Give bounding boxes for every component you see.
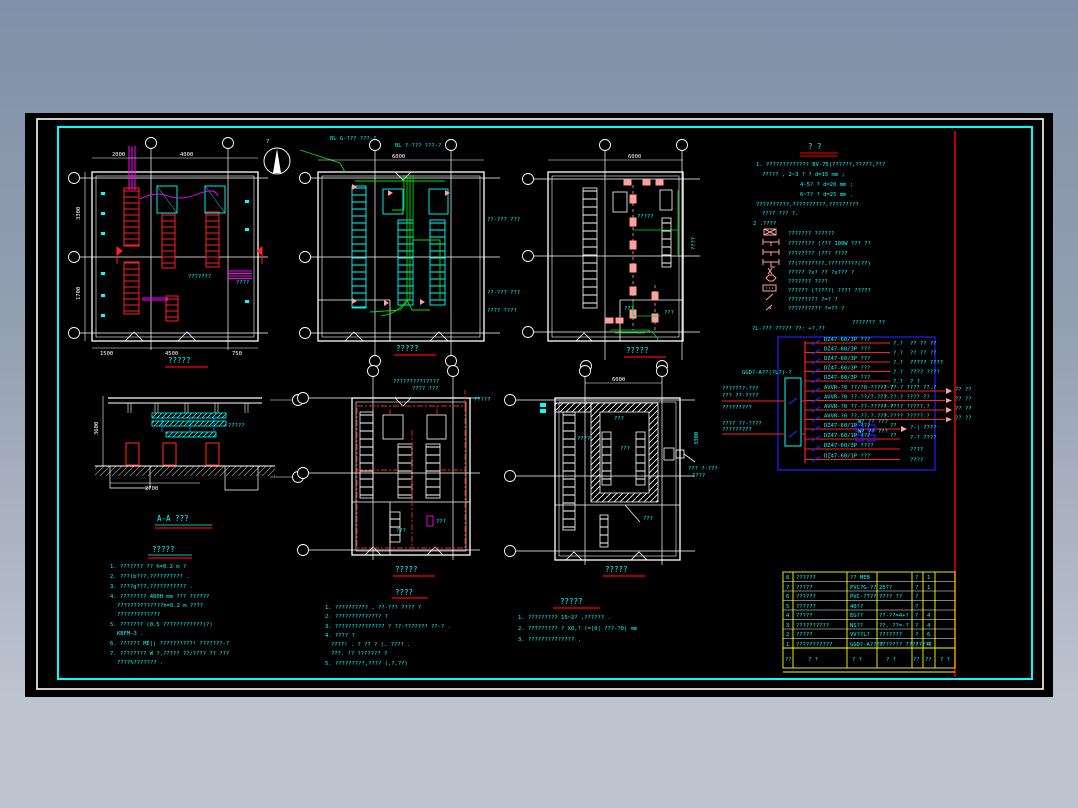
t-r5-model: EG?? bbox=[850, 613, 863, 619]
nc-line-4: 4. ???? ? bbox=[325, 633, 355, 639]
t-h-5: ?? bbox=[913, 657, 920, 663]
p2-ann-2: BL ?-??? ???-? bbox=[395, 143, 441, 149]
sld-c12-r: ???? bbox=[910, 447, 923, 453]
p2-title: ????? bbox=[396, 344, 419, 353]
p5-ann-2: ???? ??? bbox=[412, 386, 439, 392]
p5-label-3: ??? bbox=[396, 528, 406, 534]
sld-c3-r: ?.? bbox=[893, 360, 903, 366]
sld-c1-l: DZ47-60/3P ??? bbox=[824, 337, 870, 343]
ni-line-5: ??????????????h=0.2 m ???? bbox=[117, 603, 203, 609]
t-r5-qty: ? bbox=[915, 613, 918, 619]
p1-cab-note: ???? bbox=[236, 280, 249, 286]
p5-title: ????? bbox=[395, 565, 418, 574]
notes-install-title: ????? bbox=[152, 545, 175, 554]
p2-right-label-1: ??-??? ??? bbox=[487, 217, 520, 223]
ni-line-9: 6. ?????? ME|| ??????????! ???????-? bbox=[110, 641, 229, 647]
sld-c2-x: ?? ?? ?? bbox=[910, 351, 937, 357]
ni-line-10: 7. ???????? W ?,????? ??/???? ?? ??? bbox=[110, 651, 229, 657]
sld-box-label: GGD?-A??(?L?)-? bbox=[742, 370, 792, 376]
t-r6-note: ??. ??=-? bbox=[879, 623, 909, 629]
p6-side-dim: 3300 bbox=[694, 432, 700, 445]
t-r4-num: 5 bbox=[786, 604, 789, 610]
notes-main-line-6: ???? ??? ?. bbox=[762, 211, 798, 217]
p1-room-note: ??????? bbox=[188, 274, 211, 280]
legend-text-8: ????????? ?=? ? bbox=[788, 297, 838, 303]
p4-dim-bottom: 2700 bbox=[145, 486, 158, 492]
nf-line-1: 1. ????????? 15~2? ,?????? . bbox=[518, 615, 611, 621]
p6-title: ????? bbox=[605, 565, 628, 574]
legend-text-2: ???????? (??? 100W ??? ?? bbox=[788, 241, 871, 247]
notes-main-line-2: ????? , 2~3 ? ? d=15 mm ; bbox=[762, 172, 845, 178]
nc-line-5: ????! . ? ?? ? (. ???? . bbox=[331, 642, 410, 648]
t-r6-qty: ? bbox=[915, 623, 918, 629]
sld-c2-r: ?.? bbox=[893, 351, 903, 357]
t-r3-qty: ? bbox=[915, 594, 918, 600]
p1-dim-top-2: 4000 bbox=[180, 152, 193, 158]
t-r2-model: PVC?G-?? bbox=[850, 585, 877, 591]
nf-line-2: 2. ????????? ? X0,? (=|0| ???-?0| mm bbox=[518, 626, 638, 632]
p1-dim-side-1: 3300 bbox=[76, 207, 82, 220]
sld-c4-l: DZ47-60/3P ??? bbox=[824, 366, 870, 372]
p2-right-label-2: ??-??? ??? bbox=[487, 290, 520, 296]
t-r7-qty: ? bbox=[915, 632, 918, 638]
notes-floor-title: ????? bbox=[560, 597, 583, 606]
t-h-2: ? ? bbox=[808, 657, 818, 663]
t-r3-model: PVC-?T?? bbox=[850, 594, 877, 600]
t-h-1: ?? bbox=[785, 657, 792, 663]
p3-label-3: ??? bbox=[664, 310, 674, 316]
notes-main-line-7: 2 .???? bbox=[753, 221, 776, 227]
ni-line-1: 1. ??????? ?? h=0.2 m ? bbox=[110, 564, 186, 570]
ni-line-11: ????%??????? . bbox=[117, 660, 163, 666]
ni-line-3: 3. ????g???,??????????? . bbox=[110, 584, 193, 590]
p6-label-4: ??? ?-??? bbox=[688, 466, 718, 472]
t-r2-qty: ? bbox=[915, 585, 918, 591]
sld-c7-r: ?? ?? bbox=[955, 397, 972, 403]
p6-dim-top: 6000 bbox=[612, 377, 625, 383]
sld-c11-x: ?-? ???? bbox=[910, 435, 937, 441]
legend-text-5: ????? ?x? ?? ?x??? ? bbox=[788, 270, 854, 276]
t-r6-name: ?????????? bbox=[796, 623, 829, 629]
sld-c3-x: ????? ???? bbox=[910, 360, 943, 366]
t-r8-num: 1 bbox=[786, 642, 789, 648]
legend-text-1: ??????? ?????? bbox=[788, 231, 834, 237]
t-h-4: ? ? bbox=[886, 657, 896, 663]
cad-viewer: ? 2000 4 bbox=[0, 0, 1078, 808]
p1-dim-bot-3: 750 bbox=[232, 351, 242, 357]
legend-text-9: ?????????? ?=?? ? bbox=[788, 306, 844, 312]
p1-dim-side-2: 1700 bbox=[76, 287, 82, 300]
ni-line-7: 5. ??????? (0.5 ????????????(?) bbox=[110, 622, 213, 628]
sld-c4-x: ???? ???? bbox=[910, 370, 940, 376]
sld-c8-m: ??-???? ?????.? bbox=[880, 404, 930, 410]
notes-main-line-4: 6~7? ? d=25 mm . bbox=[800, 192, 853, 198]
t-r7-num: 2 bbox=[786, 632, 789, 638]
sld-feeder1-line1: ???????-??? bbox=[722, 386, 758, 392]
t-r6-num: 3 bbox=[786, 623, 789, 629]
sld-feeder2-line2: ????????? bbox=[722, 427, 752, 433]
sld-header-1: ?L-??? ????? ??: +?.?? bbox=[752, 326, 825, 332]
sld-c10-r: ?? bbox=[890, 423, 897, 429]
sld-c11-r: ?? bbox=[890, 433, 897, 439]
t-r3-note: ???? ?? bbox=[879, 594, 902, 600]
ni-line-8: KBFM-3 . bbox=[117, 631, 144, 637]
nc-line-6: ???. ?? ??????? ? bbox=[331, 651, 387, 657]
legend-text-4: ??(????????,?????????(??) bbox=[788, 261, 871, 267]
ni-line-2: 2. ???(b???,?????????? . bbox=[110, 574, 189, 580]
sld-c4-r: ?.? bbox=[893, 370, 903, 376]
sld-c9-r: ?? ?? bbox=[955, 416, 972, 422]
nf-line-3: 3. ?????????????? . bbox=[518, 637, 581, 643]
p4-tray-label: ????? bbox=[228, 423, 245, 429]
nc-line-2: 2. ?????????????? ? bbox=[325, 614, 388, 620]
t-r4-name: ?????? bbox=[796, 604, 816, 610]
legend-text-6: ??????? ???? bbox=[788, 279, 828, 285]
p6-label-5: ???? bbox=[692, 473, 705, 479]
t-h-6: ?? bbox=[925, 657, 932, 663]
sld-c7-l: AVVR-?0 ??-??/?-? ? bbox=[824, 395, 887, 401]
t-r1-unit: 1 bbox=[927, 575, 930, 581]
p6-label-1: ???? bbox=[577, 436, 590, 442]
p5-label-2: ??? bbox=[436, 519, 446, 525]
legend-text-3: ???????? (??? ???? bbox=[788, 251, 848, 257]
p2-right-label-3: ???? ???? bbox=[487, 308, 517, 314]
p4-floor-hatch bbox=[95, 466, 275, 476]
nc-line-3: 3. ??????????????? ? ??-??????? ??-? . bbox=[325, 624, 451, 630]
t-r3-num: 6 bbox=[786, 594, 789, 600]
legend-text-7: ?????? (?????) ???? ????? bbox=[788, 288, 871, 294]
t-r8-name: ??????????? bbox=[796, 642, 832, 648]
t-r2-name: ????? bbox=[796, 585, 813, 591]
p5-label-1: ????? bbox=[474, 397, 491, 403]
north-label: ? bbox=[266, 139, 269, 145]
p1-title: ????? bbox=[168, 356, 191, 365]
nc-line-7: 5. ?????????,???? (,?,??) bbox=[325, 661, 408, 667]
t-r7-note: ??????? bbox=[879, 632, 902, 638]
p2-dim-top: 6000 bbox=[392, 154, 405, 160]
notes-main-line-1: 1. ????????????? BV-75|??????,?????,??? bbox=[756, 162, 885, 168]
sld-c8-r: ?? ?? bbox=[955, 406, 972, 412]
t-r5-note: ??-??=4+? bbox=[879, 613, 909, 619]
notes-cable-title: ???? bbox=[395, 588, 413, 597]
p3-label-1: ????? bbox=[637, 214, 654, 220]
sld-c5-l: DZ47-60/3P ??? bbox=[824, 375, 870, 381]
t-r3-name: ?????? bbox=[796, 594, 816, 600]
sld-header-2: ??????? ?? bbox=[852, 320, 885, 326]
ni-line-4: 4. ???????? 400H mm ??? ?????? bbox=[110, 594, 209, 600]
sld-c10-x: ?-| ???? bbox=[910, 425, 937, 431]
p6-label-2: ??? bbox=[614, 416, 624, 422]
t-r7-name: ????? bbox=[796, 632, 813, 638]
t-h-7: ? ? bbox=[940, 657, 950, 663]
t-r1-qty: ? bbox=[915, 575, 918, 581]
t-r2-note: 20?? bbox=[879, 585, 892, 591]
t-r8-note: ??????? ???????? bbox=[879, 642, 932, 648]
p6-label-6: ??? bbox=[643, 516, 653, 522]
t-h-3: ? ? bbox=[852, 657, 862, 663]
sld-c13-l: DZ47-60/1P ??? bbox=[824, 454, 870, 460]
ni-line-6: ????????????? bbox=[117, 612, 160, 618]
notes-main-line-5: ??????????,??????????,????????? bbox=[756, 202, 859, 208]
t-r4-model: 40?? bbox=[850, 604, 863, 610]
p6-label-3: ??? bbox=[620, 446, 630, 452]
sld-c7-m: ??-??-? ???? ?? bbox=[880, 395, 930, 401]
p3-title: ????? bbox=[626, 346, 649, 355]
sld-c13-r: ???? bbox=[910, 458, 923, 464]
t-r6-model: NS?? bbox=[850, 623, 863, 629]
p3-label-2: ??? bbox=[624, 306, 634, 312]
sld-c1-x: ?? ?? ?? bbox=[910, 341, 937, 347]
sld-feeder1-line3: ????????? bbox=[722, 405, 752, 411]
t-r2-unit: 1 bbox=[927, 585, 930, 591]
nc-line-1: 1. ?????????? , ??-??? ???? ? bbox=[325, 605, 421, 611]
sld-c10-m: W? ?? ??? bbox=[858, 419, 888, 425]
sld-c3-l: DZ47-60/3P ??? bbox=[824, 356, 870, 362]
notes-main-title: ? ? bbox=[808, 142, 822, 151]
p1-dim-top-1: 2000 bbox=[112, 152, 125, 158]
t-r8-qty: ? bbox=[915, 642, 918, 648]
p1-dim-bot-1: 1500 bbox=[100, 351, 113, 357]
t-r1-name: ?????? bbox=[796, 575, 816, 581]
p2-ann-1: BL G-??? ???-? bbox=[330, 136, 376, 142]
p4-title: A-A ??? bbox=[157, 514, 189, 523]
sld-c12-l: DZ47-60/3P ???? bbox=[824, 443, 874, 449]
t-r7-unit: 6 bbox=[927, 632, 930, 638]
notes-main-line-3: 4-5? ? d=20 mm ; bbox=[800, 182, 853, 188]
t-r4-qty: ? bbox=[915, 604, 918, 610]
t-r5-name: ????? bbox=[796, 613, 813, 619]
p3-side-label: ???? bbox=[691, 237, 697, 250]
sld-feeder1-line2: ??? ??-???? bbox=[722, 393, 758, 399]
sld-c11-m: W? ?? ??? bbox=[858, 429, 888, 435]
p3-dim-top: 6000 bbox=[628, 154, 641, 160]
t-r1-model: ?? MEB bbox=[850, 575, 871, 581]
t-r7-model: VV??L? bbox=[850, 632, 870, 638]
p4-dim-left: 3600 bbox=[94, 422, 100, 435]
sld-c6-m: ??-??-? ???? ??.? bbox=[880, 385, 936, 391]
sld-c1-r: ?.? bbox=[893, 341, 903, 347]
sld-c2-l: DZ47-60/3P ??? bbox=[824, 347, 870, 353]
t-r1-num: 8 bbox=[786, 575, 789, 581]
p5-ann-1: ?????????????? bbox=[393, 379, 439, 385]
t-r2-num: 7 bbox=[786, 585, 789, 591]
sld-c6-r: ?? ?? bbox=[955, 387, 972, 393]
